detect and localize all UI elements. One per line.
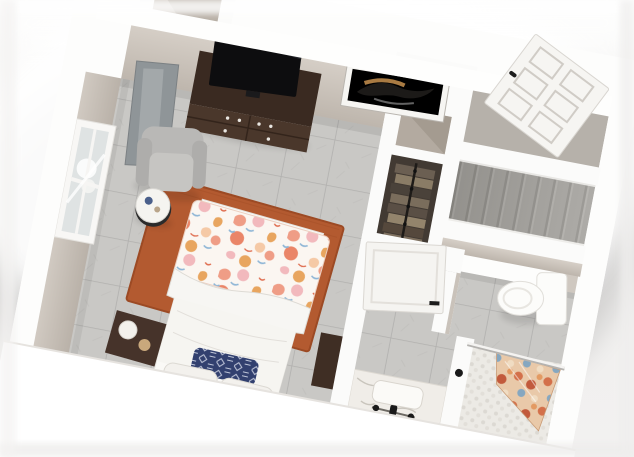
bathroom-door-handle bbox=[429, 301, 439, 305]
armchair bbox=[135, 126, 208, 193]
bathroom-door bbox=[363, 242, 446, 314]
floor-plan-svg bbox=[0, 0, 634, 457]
chair-seat bbox=[148, 152, 194, 192]
floor-plan-render bbox=[0, 0, 634, 457]
floor-plan bbox=[0, 0, 634, 457]
